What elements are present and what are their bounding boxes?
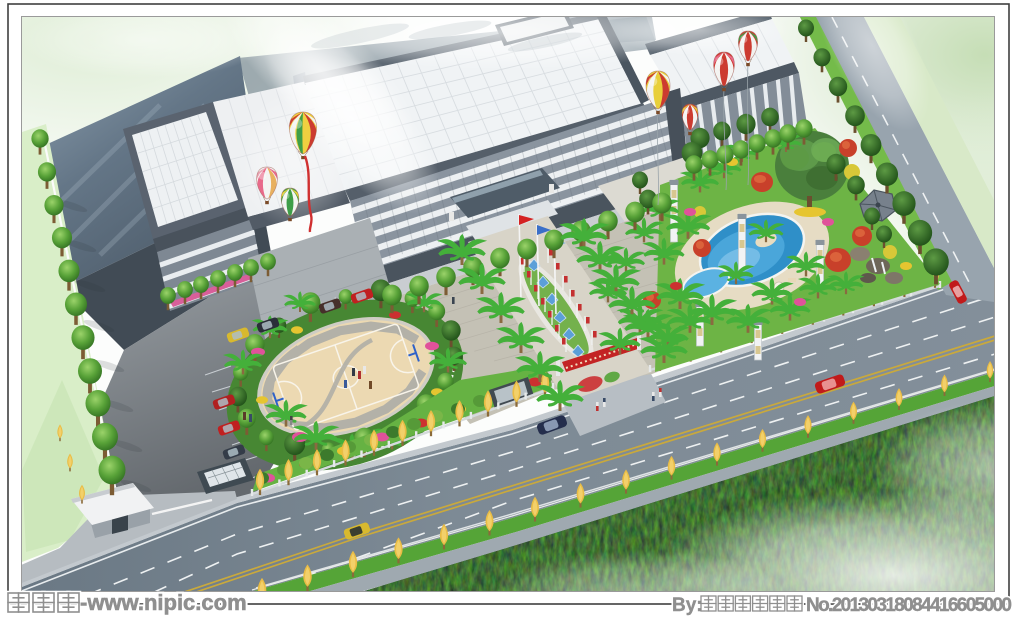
svg-text:No.20130318084416605000: No.20130318084416605000 — [806, 595, 1012, 616]
svg-text:-www.nipic.com: -www.nipic.com — [80, 590, 247, 615]
svg-text:By:: By: — [672, 595, 703, 616]
